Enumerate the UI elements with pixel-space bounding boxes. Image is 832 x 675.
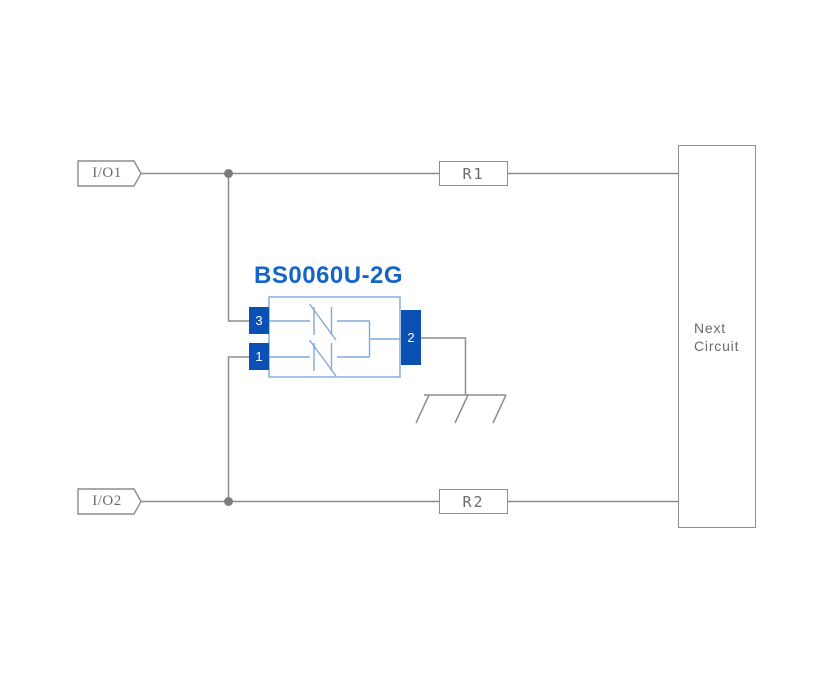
circuit-diagram-canvas: I/O1 I/O2 R1 R2 Next Circuit BS0060U-2G … xyxy=(0,0,832,675)
component-internals xyxy=(269,297,401,377)
next-circuit-box: Next Circuit xyxy=(678,145,756,528)
junction-dot-bottom xyxy=(224,497,233,506)
ground-slash-2 xyxy=(455,395,468,423)
ground-slash-3 xyxy=(493,395,506,423)
resistor-r1-label: R1 xyxy=(462,165,484,183)
wire-io1-to-pin3 xyxy=(229,174,253,322)
next-circuit-label: Next Circuit xyxy=(679,319,739,355)
component-part-number: BS0060U-2G xyxy=(254,262,403,290)
io1-tag-label: I/O1 xyxy=(78,161,136,186)
io2-tag-label: I/O2 xyxy=(78,489,136,514)
next-circuit-line1: Next xyxy=(694,319,739,337)
suppressor-element-bottom-icon xyxy=(310,340,337,376)
next-circuit-line2: Circuit xyxy=(694,337,739,355)
resistor-r1-box: R1 xyxy=(439,161,508,186)
resistor-r2-label: R2 xyxy=(462,493,484,511)
ground-slash-1 xyxy=(416,395,429,423)
ground-icon xyxy=(416,395,506,423)
component-pin-3: 3 xyxy=(249,307,269,334)
resistor-r2-box: R2 xyxy=(439,489,508,514)
wire-io2-to-pin1 xyxy=(229,357,253,502)
component-pin-2: 2 xyxy=(401,310,421,365)
junction-dot-top xyxy=(224,169,233,178)
suppressor-element-top-icon xyxy=(310,304,337,340)
component-pin-1: 1 xyxy=(249,343,269,370)
wire-pin2-to-ground xyxy=(420,338,466,395)
